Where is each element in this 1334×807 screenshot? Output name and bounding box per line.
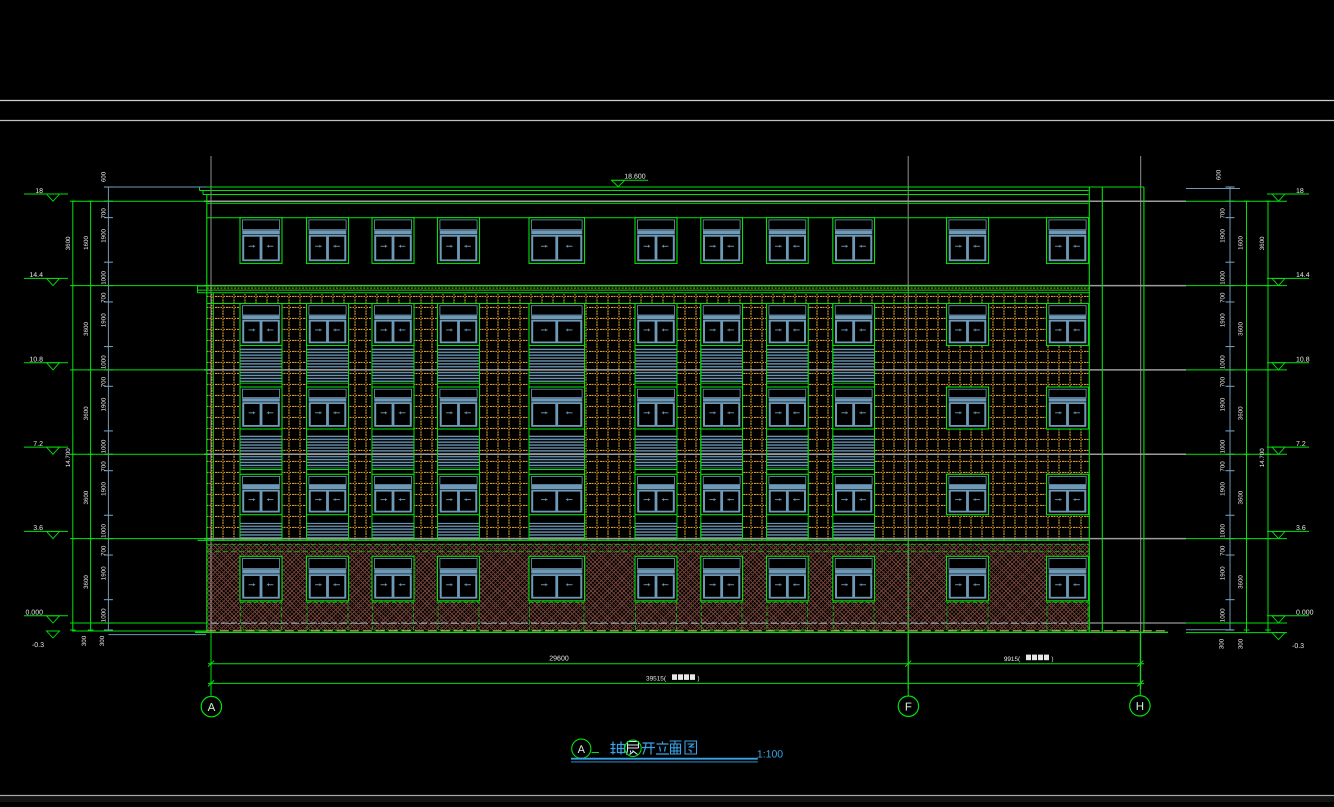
svg-text:14.700: 14.700 bbox=[65, 448, 72, 467]
svg-text:1900: 1900 bbox=[101, 482, 108, 496]
svg-text:700: 700 bbox=[101, 292, 108, 303]
svg-text:F: F bbox=[905, 701, 912, 713]
svg-text:3600: 3600 bbox=[1259, 236, 1266, 250]
svg-text:1000: 1000 bbox=[1220, 608, 1227, 622]
svg-text:1600: 1600 bbox=[1238, 236, 1245, 250]
svg-text:29600: 29600 bbox=[549, 656, 569, 663]
svg-text:300: 300 bbox=[1238, 638, 1245, 649]
svg-text:3600: 3600 bbox=[83, 575, 90, 589]
svg-text:-0.3: -0.3 bbox=[32, 642, 44, 649]
svg-text:1000: 1000 bbox=[1220, 355, 1227, 369]
svg-text:1000: 1000 bbox=[1220, 439, 1227, 453]
svg-text:600: 600 bbox=[101, 171, 108, 182]
svg-text:1000: 1000 bbox=[101, 270, 108, 284]
svg-text:1900: 1900 bbox=[101, 566, 108, 580]
svg-text:1900: 1900 bbox=[1220, 566, 1227, 580]
svg-text:3600: 3600 bbox=[65, 236, 72, 250]
svg-text:1000: 1000 bbox=[101, 355, 108, 369]
svg-text:1900: 1900 bbox=[101, 313, 108, 327]
svg-text:1900: 1900 bbox=[1220, 397, 1227, 411]
svg-text:14.700: 14.700 bbox=[1259, 448, 1266, 467]
svg-text:700: 700 bbox=[1220, 461, 1227, 472]
svg-text:1900: 1900 bbox=[101, 397, 108, 411]
svg-text:39515(: 39515( bbox=[646, 676, 667, 683]
svg-text:600: 600 bbox=[1216, 169, 1223, 180]
svg-text:1000: 1000 bbox=[101, 439, 108, 453]
svg-text:H: H bbox=[1136, 701, 1144, 713]
svg-text:700: 700 bbox=[1220, 545, 1227, 556]
svg-text:700: 700 bbox=[1220, 292, 1227, 303]
svg-text:18.600: 18.600 bbox=[624, 174, 646, 181]
svg-text:1000: 1000 bbox=[101, 524, 108, 538]
svg-text:700: 700 bbox=[1220, 208, 1227, 219]
svg-text:300: 300 bbox=[99, 635, 106, 646]
svg-text:700: 700 bbox=[101, 376, 108, 387]
svg-text:A: A bbox=[578, 744, 586, 756]
svg-text:3600: 3600 bbox=[1238, 490, 1245, 504]
svg-text:): ) bbox=[1051, 656, 1053, 663]
svg-text:3600: 3600 bbox=[83, 490, 90, 504]
svg-text:300: 300 bbox=[81, 635, 88, 646]
svg-text:300: 300 bbox=[1219, 638, 1226, 649]
svg-text:3600: 3600 bbox=[1238, 322, 1245, 336]
svg-text:1000: 1000 bbox=[1220, 524, 1227, 538]
svg-text:3600: 3600 bbox=[1238, 406, 1245, 420]
svg-text:1900: 1900 bbox=[1220, 313, 1227, 327]
svg-text:): ) bbox=[697, 676, 699, 683]
svg-text:9915(: 9915( bbox=[1004, 656, 1021, 663]
svg-text:1:100: 1:100 bbox=[757, 749, 783, 761]
svg-text:700: 700 bbox=[101, 545, 108, 556]
svg-text:700: 700 bbox=[101, 461, 108, 472]
svg-text:700: 700 bbox=[101, 208, 108, 219]
svg-text:1900: 1900 bbox=[1220, 482, 1227, 496]
svg-text:3600: 3600 bbox=[1238, 575, 1245, 589]
svg-text:1600: 1600 bbox=[83, 236, 90, 250]
svg-text:700: 700 bbox=[1220, 376, 1227, 387]
svg-text:-0.3: -0.3 bbox=[1292, 643, 1304, 650]
svg-text:1000: 1000 bbox=[101, 608, 108, 622]
svg-text:A: A bbox=[208, 702, 216, 714]
svg-text:1900: 1900 bbox=[101, 228, 108, 242]
svg-text:1900: 1900 bbox=[1220, 228, 1227, 242]
svg-text:3600: 3600 bbox=[83, 322, 90, 336]
svg-text:1000: 1000 bbox=[1220, 270, 1227, 284]
svg-text:3600: 3600 bbox=[83, 406, 90, 420]
